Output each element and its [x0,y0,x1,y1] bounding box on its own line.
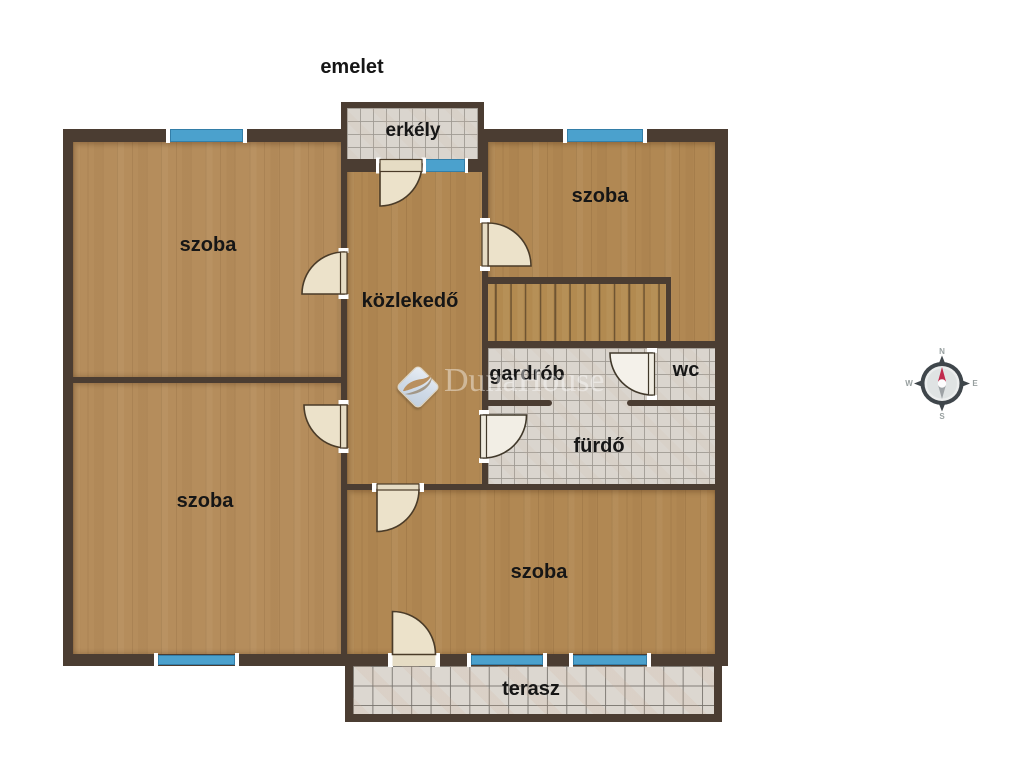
svg-text:N: N [939,347,945,356]
svg-text:W: W [905,379,913,388]
svg-text:S: S [939,412,945,421]
svg-text:E: E [972,379,978,388]
